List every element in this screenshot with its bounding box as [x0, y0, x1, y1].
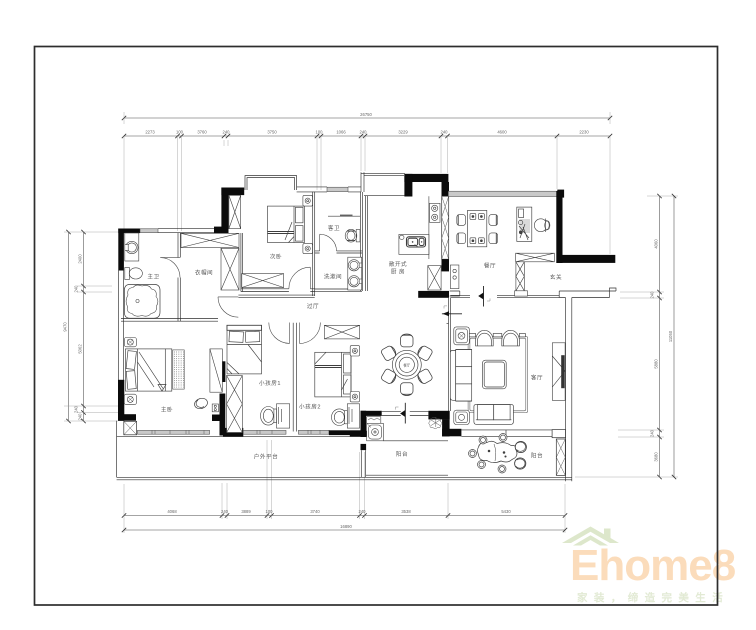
svg-text:餐厅: 餐厅 — [403, 362, 410, 367]
svg-text:26750: 26750 — [360, 112, 372, 117]
svg-text:240: 240 — [650, 429, 655, 437]
svg-text:2273: 2273 — [145, 130, 155, 135]
svg-text:5880: 5880 — [654, 359, 659, 369]
svg-text:240: 240 — [359, 509, 367, 514]
svg-text:240: 240 — [650, 291, 655, 299]
svg-text:240: 240 — [74, 405, 79, 413]
svg-text:240: 240 — [74, 285, 79, 293]
svg-text:4068: 4068 — [167, 509, 177, 514]
svg-text:9470: 9470 — [63, 322, 68, 332]
svg-text:2230: 2230 — [579, 130, 589, 135]
svg-text:厨 房: 厨 房 — [391, 268, 405, 276]
svg-text:100: 100 — [266, 509, 274, 514]
svg-text:阳台: 阳台 — [531, 452, 543, 460]
svg-text:2400: 2400 — [78, 254, 83, 264]
svg-text:5430: 5430 — [501, 509, 511, 514]
svg-text:小孩房2: 小孩房2 — [299, 403, 321, 411]
svg-text:阳台: 阳台 — [396, 450, 408, 458]
svg-text:4600: 4600 — [497, 130, 507, 135]
svg-text:240: 240 — [360, 130, 368, 135]
svg-text:5062: 5062 — [78, 344, 83, 354]
svg-text:3740: 3740 — [310, 509, 320, 514]
svg-text:洗漱间: 洗漱间 — [324, 273, 342, 281]
svg-text:4060: 4060 — [654, 239, 659, 249]
svg-text:敞开式: 敞开式 — [389, 260, 407, 268]
svg-text:1066: 1066 — [336, 130, 346, 135]
svg-text:3750: 3750 — [267, 130, 277, 135]
svg-text:3889: 3889 — [241, 509, 251, 514]
svg-text:玄关: 玄关 — [550, 273, 562, 281]
svg-text:家装，缔造完美生活: 家装，缔造完美生活 — [577, 591, 729, 604]
svg-text:餐厅: 餐厅 — [484, 262, 496, 270]
svg-text:100: 100 — [316, 130, 324, 135]
svg-text:3538: 3538 — [401, 509, 411, 514]
svg-text:小孩房1: 小孩房1 — [259, 379, 281, 387]
svg-text:240: 240 — [441, 130, 449, 135]
svg-text:100: 100 — [176, 130, 184, 135]
svg-text:3680: 3680 — [654, 452, 659, 462]
svg-text:Ehome8: Ehome8 — [570, 541, 736, 590]
svg-text:主卧: 主卧 — [161, 406, 173, 414]
svg-text:主卫: 主卫 — [147, 273, 159, 281]
svg-text:3229: 3229 — [398, 130, 408, 135]
svg-text:户外平台: 户外平台 — [254, 453, 278, 461]
svg-text:衣帽间: 衣帽间 — [195, 269, 213, 277]
svg-text:客卫: 客卫 — [328, 224, 340, 232]
svg-text:客厅: 客厅 — [531, 374, 543, 382]
svg-text:16890: 16890 — [340, 524, 352, 529]
svg-text:11050: 11050 — [668, 330, 673, 342]
svg-text:3760: 3760 — [197, 130, 207, 135]
svg-text:240: 240 — [221, 509, 229, 514]
svg-text:240: 240 — [223, 130, 231, 135]
svg-text:过厅: 过厅 — [307, 302, 319, 310]
svg-text:次卧: 次卧 — [270, 253, 282, 261]
svg-text:240: 240 — [78, 413, 83, 421]
